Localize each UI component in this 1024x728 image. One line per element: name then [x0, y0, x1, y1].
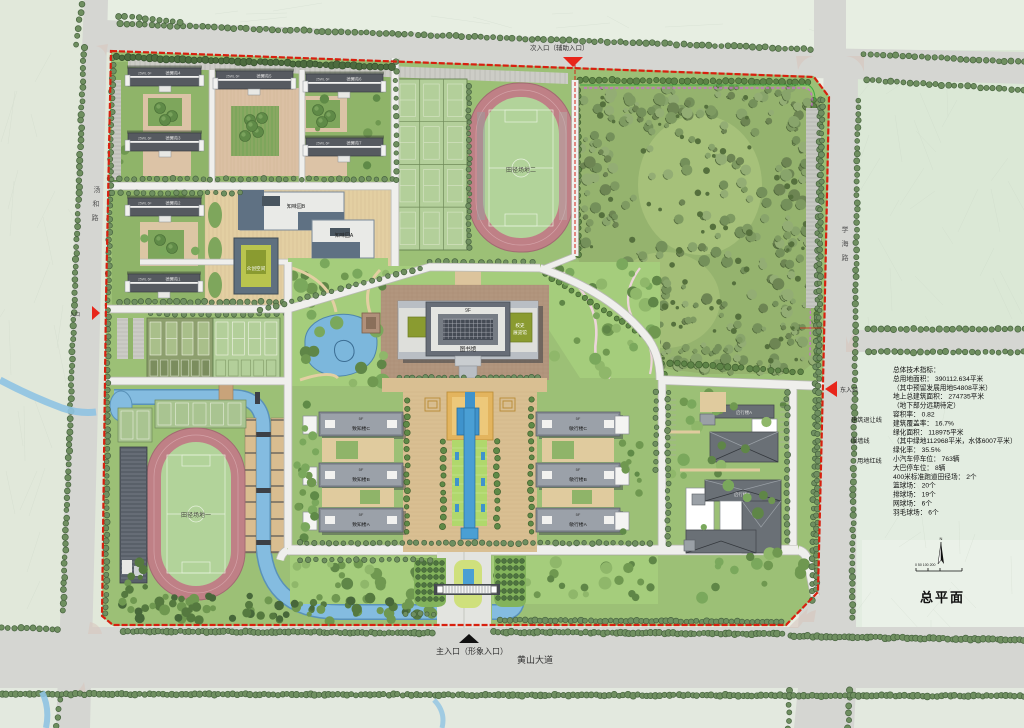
svg-text:小汽车停车位： 763辆: 小汽车停车位： 763辆	[893, 454, 960, 463]
svg-text:知味园A: 知味园A	[335, 232, 354, 239]
svg-text:篮球场： 20个: 篮球场： 20个	[893, 481, 936, 490]
svg-text:25WL 6F: 25WL 6F	[316, 78, 330, 82]
svg-text:围墙线: 围墙线	[851, 437, 870, 445]
svg-text:400米标准跑道田径场： 2个: 400米标准跑道田径场： 2个	[893, 472, 977, 481]
svg-text:绿化率： 35.5%: 绿化率： 35.5%	[893, 445, 941, 454]
svg-text:绿化面积： 118975平米: 绿化面积： 118975平米	[893, 427, 964, 436]
svg-text:5F: 5F	[576, 416, 581, 421]
svg-text:25WL 6F: 25WL 6F	[138, 278, 152, 282]
svg-text:入口: 入口	[70, 312, 80, 318]
svg-text:地上总建筑面积： 274735平米: 地上总建筑面积： 274735平米	[893, 392, 984, 401]
svg-text:9F: 9F	[465, 308, 471, 314]
svg-text:总体技术指标：: 总体技术指标：	[893, 365, 940, 374]
svg-text:总平面: 总平面	[920, 590, 965, 605]
svg-text:德馨苑2: 德馨苑2	[166, 200, 182, 207]
svg-text:德馨苑5: 德馨苑5	[257, 73, 273, 80]
svg-text:25WL 6F: 25WL 6F	[316, 142, 330, 146]
svg-text:德馨苑6: 德馨苑6	[347, 76, 363, 83]
svg-text:建筑退让线: 建筑退让线	[851, 416, 882, 424]
svg-text:德馨苑4: 德馨苑4	[166, 70, 182, 77]
svg-text:知味园B: 知味园B	[287, 203, 306, 210]
svg-text:海: 海	[842, 239, 849, 248]
svg-text:25WL 6F: 25WL 6F	[226, 75, 240, 79]
svg-text:网球场： 6个: 网球场： 6个	[893, 499, 932, 508]
svg-text:德馨苑1: 德馨苑1	[166, 276, 182, 283]
svg-text:总用地面积： 390112.634平米: 总用地面积： 390112.634平米	[893, 374, 984, 383]
svg-text:（其中绿地112968平米，水体6007平米）: （其中绿地112968平米，水体6007平米）	[893, 436, 1017, 445]
svg-text:建筑覆盖率： 16.7%: 建筑覆盖率： 16.7%	[893, 418, 954, 427]
svg-text:N: N	[940, 536, 943, 541]
svg-text:德馨苑3: 德馨苑3	[166, 135, 182, 142]
svg-text:排球场： 19个: 排球场： 19个	[893, 490, 936, 499]
svg-text:敏行楼A: 敏行楼A	[569, 521, 587, 528]
svg-text:学: 学	[842, 225, 849, 234]
svg-text:黄山大道: 黄山大道	[517, 654, 553, 665]
svg-text:（其中预留发展用地54808平米）: （其中预留发展用地54808平米）	[893, 383, 992, 392]
svg-text:羽毛球场： 6个: 羽毛球场： 6个	[893, 507, 939, 516]
svg-text:和: 和	[93, 199, 100, 208]
svg-text:敏行楼C: 敏行楼C	[569, 425, 587, 432]
svg-text:田径场地二: 田径场地二	[506, 166, 536, 174]
svg-text:图书馆: 图书馆	[460, 345, 477, 353]
svg-text:路: 路	[92, 213, 99, 222]
svg-text:主入口（形象入口）: 主入口（形象入口）	[436, 646, 508, 656]
svg-text:东入口: 东入口	[840, 386, 858, 394]
svg-text:容积率： 0.82: 容积率： 0.82	[893, 410, 935, 419]
svg-text:致知楼C: 致知楼C	[352, 425, 370, 432]
svg-text:25WL 6F: 25WL 6F	[138, 137, 152, 141]
svg-text:0 50 100 200: 0 50 100 200	[915, 563, 935, 567]
svg-text:5F: 5F	[576, 512, 581, 517]
svg-text:致知楼B: 致知楼B	[352, 476, 370, 483]
svg-text:校史: 校史	[515, 322, 525, 329]
svg-text:德馨苑7: 德馨苑7	[347, 140, 363, 147]
svg-text:田径场地一: 田径场地一	[181, 511, 211, 519]
svg-text:5F: 5F	[359, 416, 364, 421]
svg-text:25WL 6F: 25WL 6F	[138, 72, 152, 76]
svg-text:5F: 5F	[576, 467, 581, 472]
svg-text:展览馆: 展览馆	[513, 329, 527, 336]
svg-text:启行楼A: 启行楼A	[736, 409, 752, 416]
svg-text:5F: 5F	[359, 512, 364, 517]
svg-text:路: 路	[842, 253, 849, 262]
svg-text:敏行楼B: 敏行楼B	[569, 476, 587, 483]
svg-text:汤: 汤	[94, 185, 101, 194]
svg-text:次入口（辅助入口）: 次入口（辅助入口）	[530, 43, 589, 52]
svg-text:（地下部分远期待定）: （地下部分远期待定）	[893, 401, 960, 410]
svg-text:25WL 6F: 25WL 6F	[138, 202, 152, 206]
svg-text:致知楼A: 致知楼A	[352, 521, 370, 528]
svg-text:众创空间: 众创空间	[247, 265, 266, 272]
svg-text:用地红线: 用地红线	[857, 457, 882, 465]
svg-text:大巴停车位： 8辆: 大巴停车位： 8辆	[893, 463, 946, 472]
svg-text:5F: 5F	[359, 467, 364, 472]
